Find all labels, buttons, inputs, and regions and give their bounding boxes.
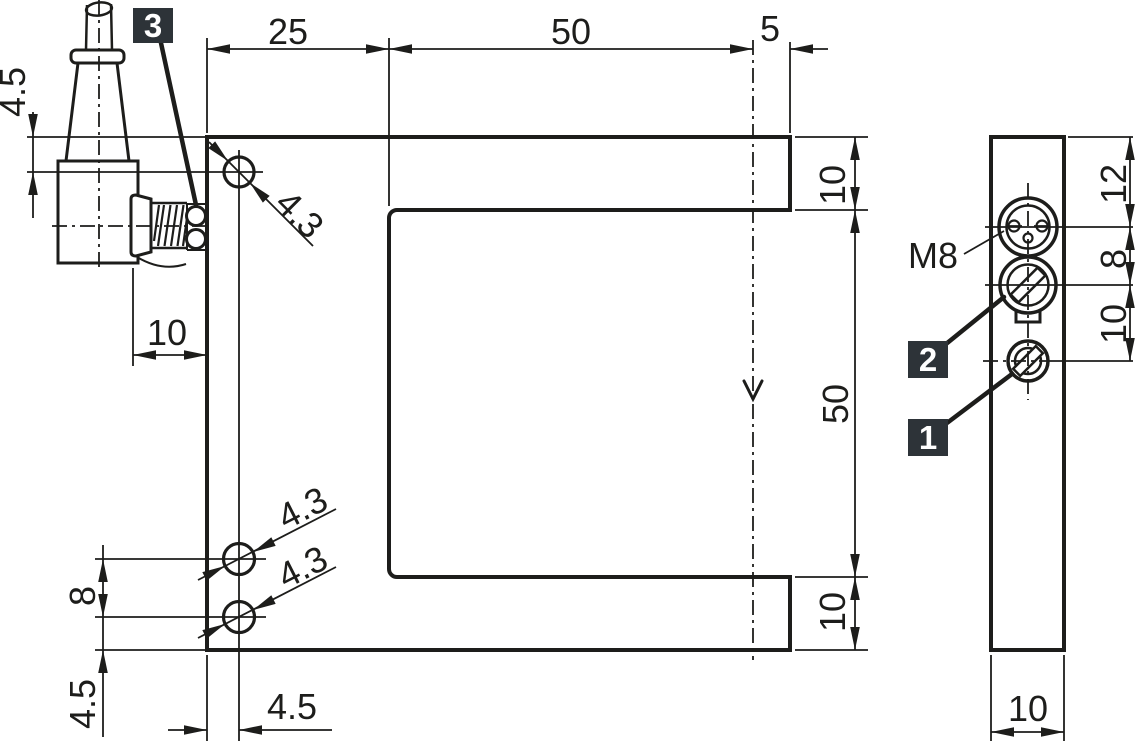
technical-drawing: 25 50 5 4.5 10 8 4.5 4.5 10 50 10 4.3 4.…: [0, 0, 1140, 743]
drawing-canvas: 25 50 5 4.5 10 8 4.5 4.5 10 50 10 4.3 4.…: [0, 0, 1140, 743]
front-view: 25 50 5 4.5 10 8 4.5 4.5 10 50 10 4.3 4.…: [0, 0, 868, 741]
dim-side-width: 10: [1008, 688, 1048, 729]
side-view: 12 8 10 10 M8 2 1: [908, 137, 1135, 741]
gland-bracket-arc: [137, 257, 186, 267]
gland-collar: [71, 50, 124, 63]
dim-top-50: 50: [551, 11, 591, 52]
m8-leader: [964, 231, 1004, 254]
dim-side-8: 8: [1093, 249, 1134, 269]
dim-side-12: 12: [1093, 164, 1134, 204]
dim-arm-bottom: 10: [812, 592, 853, 632]
dim-gland-length: 10: [147, 312, 187, 353]
dim-top-25: 25: [268, 11, 308, 52]
badge-3-leader: [161, 43, 196, 205]
front-arrowheads: [28, 44, 860, 735]
badge-1-leader: [947, 374, 1012, 423]
strain-relief-cone: [66, 63, 129, 161]
badge-1-digit: 1: [919, 419, 937, 456]
dim-hole-dia-top: 4.3: [268, 182, 332, 246]
clamp-ball-top: [187, 207, 206, 226]
cable-gland-connector: [58, 1, 206, 267]
dim-hole-bottom-offset: 4.5: [62, 679, 103, 729]
dim-top-5: 5: [760, 8, 780, 49]
front-extension-lines: [27, 38, 868, 741]
clamp-ball-bottom: [187, 230, 206, 249]
dim-hole-dia-mid: 4.3: [271, 478, 334, 537]
badge-2-leader: [946, 297, 1004, 344]
m8-label: M8: [908, 235, 958, 276]
dim-hole-dia-low: 4.3: [271, 537, 334, 596]
dim-cable-offset: 4.5: [0, 67, 33, 117]
callout-badge-2: 2: [908, 341, 948, 378]
callout-badge-3: 3: [133, 7, 173, 44]
badge-2-digit: 2: [919, 341, 937, 378]
dim-hole-left-offset: 4.5: [267, 686, 317, 727]
connector-housing: [58, 161, 138, 263]
dim-hole-pitch: 8: [62, 586, 103, 606]
dim-side-10: 10: [1093, 304, 1134, 344]
dim-slot-height: 50: [815, 384, 856, 424]
badge-3-digit: 3: [144, 7, 162, 44]
callout-badge-1: 1: [908, 419, 948, 456]
dim-arm-top: 10: [812, 165, 853, 205]
front-dimension-lines: [33, 49, 855, 737]
